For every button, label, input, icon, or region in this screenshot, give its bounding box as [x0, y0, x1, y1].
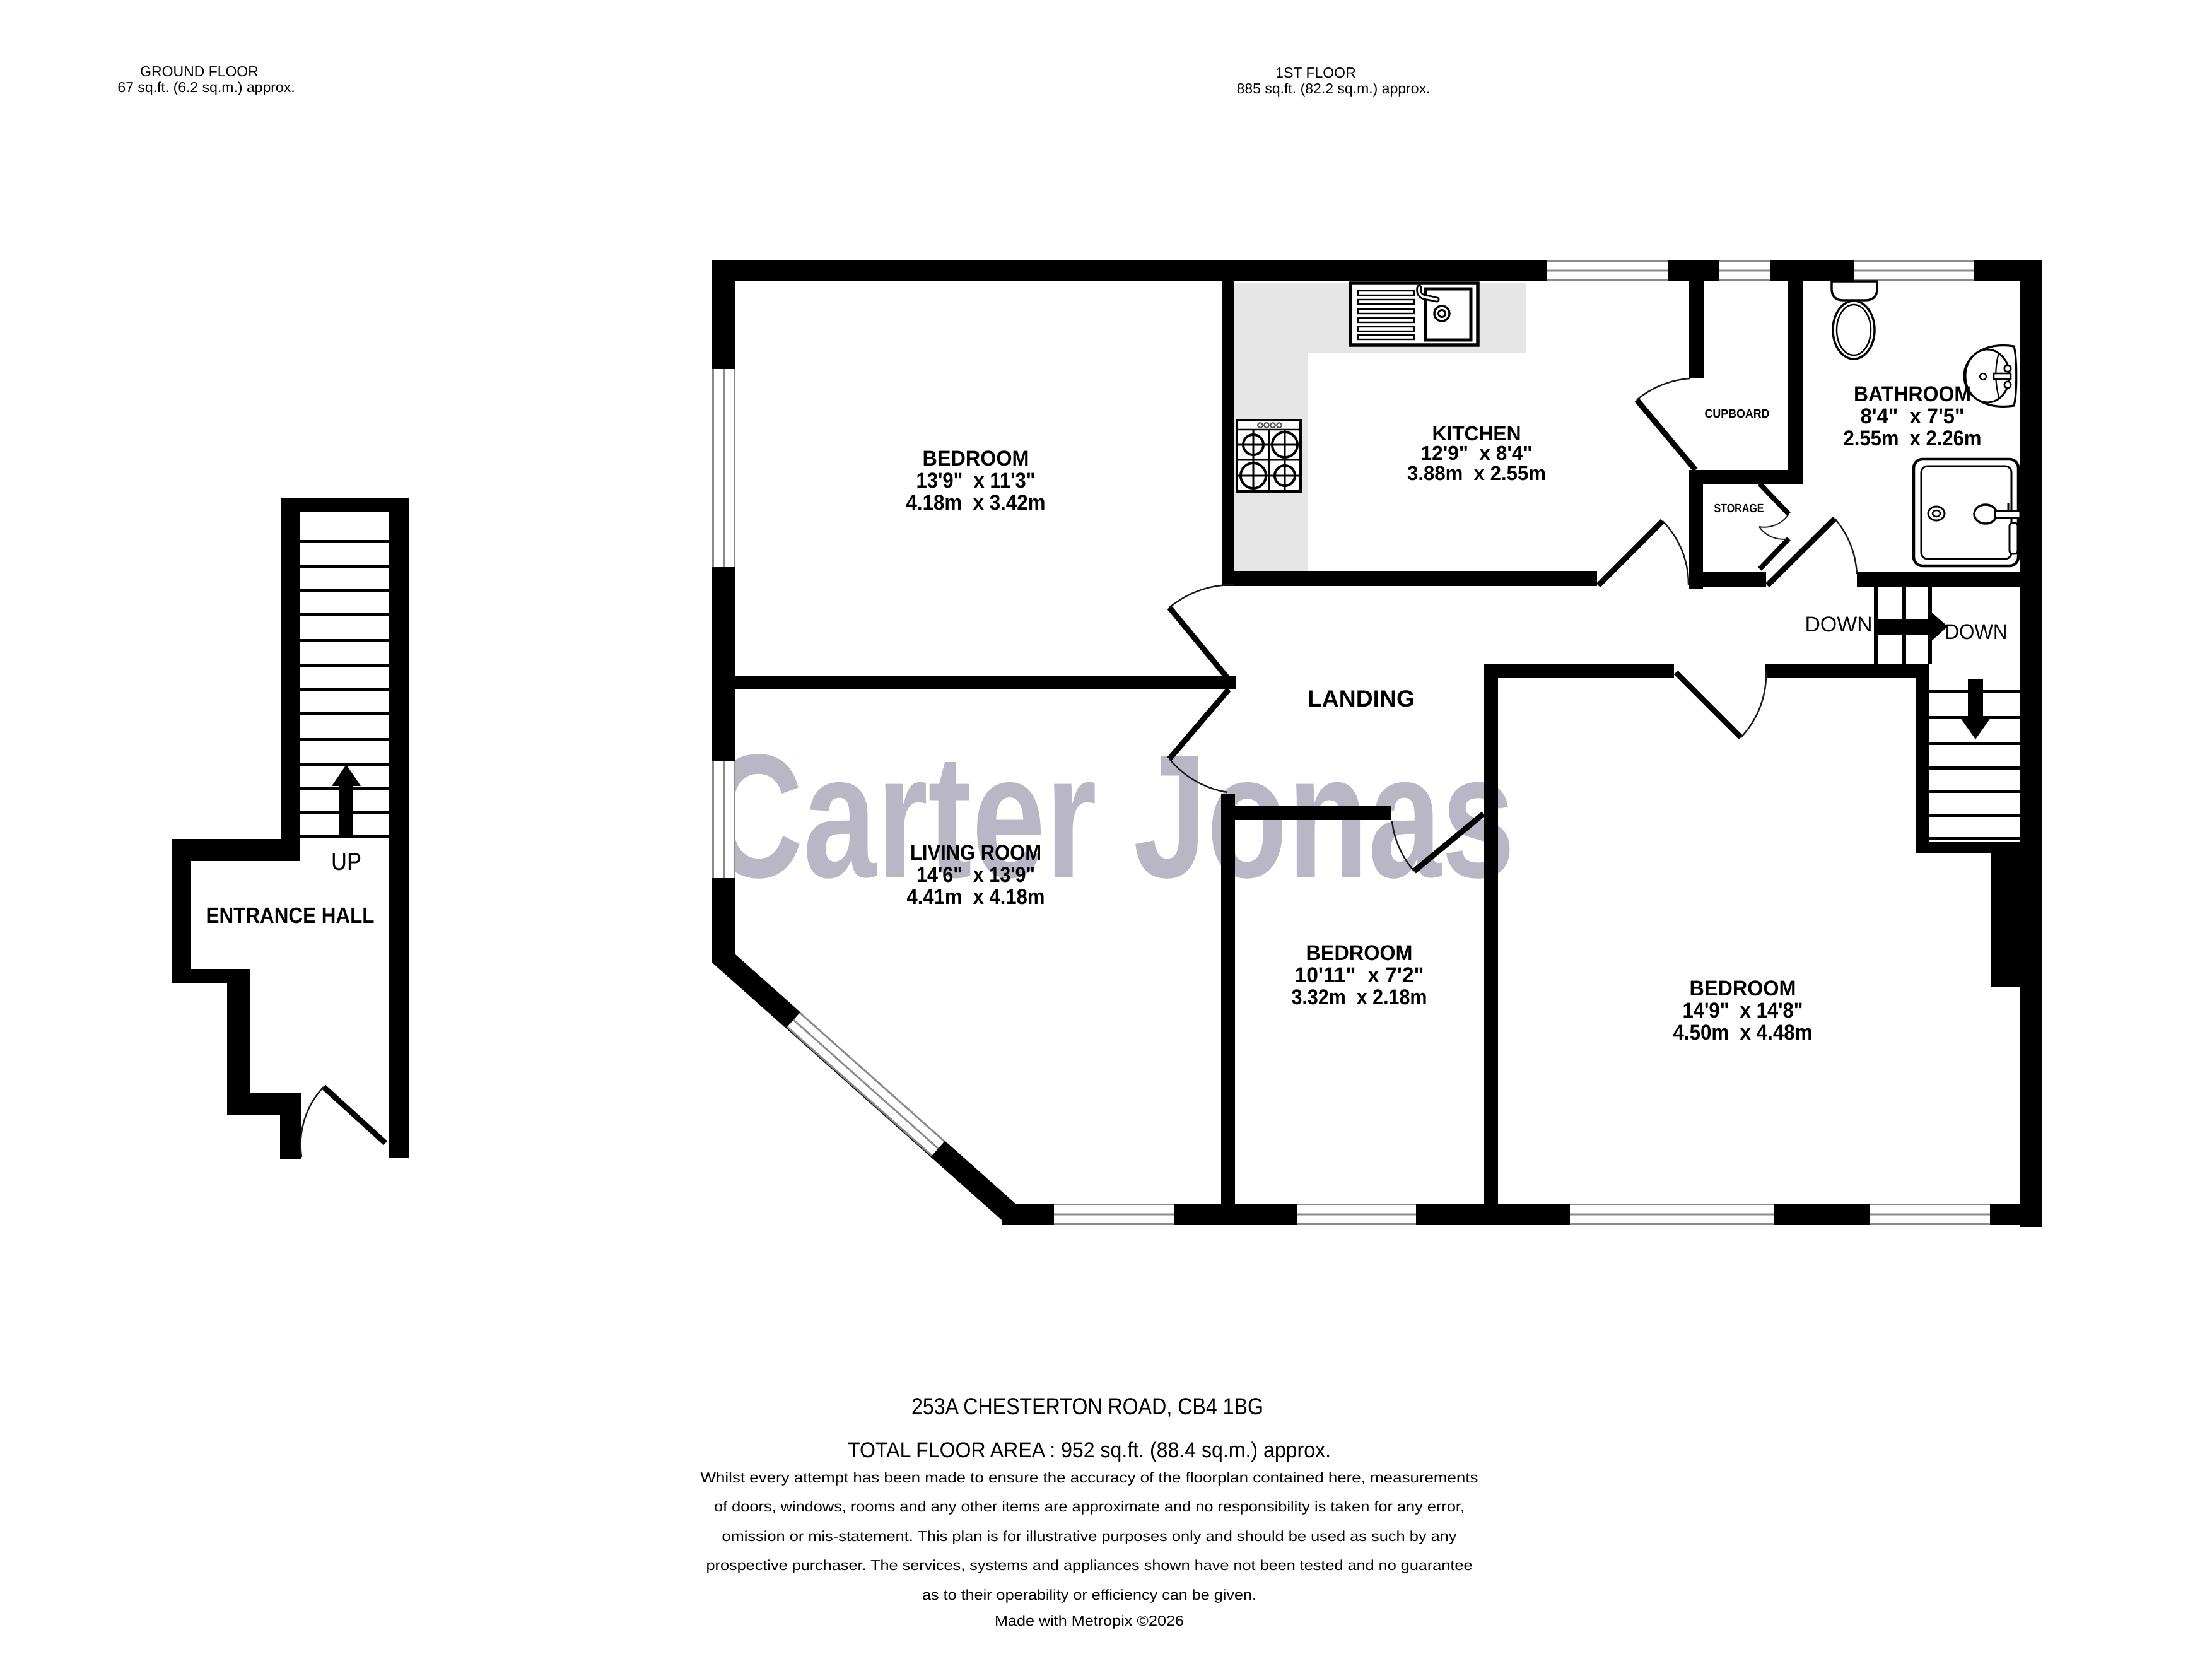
svg-text:BEDROOM: BEDROOM — [1306, 941, 1413, 965]
svg-text:Carter Jonas: Carter Jonas — [708, 718, 1515, 915]
svg-text:as to their operability or eff: as to their operability or efficiency ca… — [922, 1587, 1256, 1603]
svg-text:TOTAL FLOOR AREA : 952 sq.ft.: TOTAL FLOOR AREA : 952 sq.ft. (88.4 sq.m… — [848, 1438, 1331, 1462]
svg-text:Made with Metropix ©2026: Made with Metropix ©2026 — [995, 1612, 1184, 1629]
svg-text:4.18m x 3.42m: 4.18m x 3.42m — [906, 491, 1046, 515]
svg-text:2.55m x 2.26m: 2.55m x 2.26m — [1844, 426, 1982, 450]
svg-text:10'11" x 7'2": 10'11" x 7'2" — [1295, 963, 1424, 987]
svg-text:3.32m x 2.18m: 3.32m x 2.18m — [1292, 985, 1427, 1009]
svg-text:14'6" x 13'9": 14'6" x 13'9" — [916, 863, 1035, 887]
svg-text:of doors, windows, rooms and a: of doors, windows, rooms and any other i… — [714, 1498, 1465, 1515]
svg-text:LANDING: LANDING — [1308, 686, 1415, 712]
svg-text:4.50m x 4.48m: 4.50m x 4.48m — [1673, 1021, 1813, 1045]
svg-text:67 sq.ft. (6.2 sq.m.) approx.: 67 sq.ft. (6.2 sq.m.) approx. — [117, 79, 295, 95]
svg-text:STORAGE: STORAGE — [1714, 502, 1764, 515]
svg-text:omission or mis-statement. Thi: omission or mis-statement. This plan is … — [722, 1528, 1458, 1544]
svg-text:12'9" x 8'4": 12'9" x 8'4" — [1421, 442, 1533, 464]
svg-text:UP: UP — [331, 848, 361, 876]
svg-text:3.88m x 2.55m: 3.88m x 2.55m — [1407, 462, 1546, 484]
svg-text:253A CHESTERTON ROAD, CB4 1BG: 253A CHESTERTON ROAD, CB4 1BG — [911, 1393, 1263, 1419]
svg-text:4.41m x 4.18m: 4.41m x 4.18m — [907, 885, 1045, 909]
svg-text:prospective purchaser. The ser: prospective purchaser. The services, sys… — [706, 1557, 1473, 1573]
svg-text:885 sq.ft. (82.2 sq.m.) approx: 885 sq.ft. (82.2 sq.m.) approx. — [1237, 80, 1431, 97]
svg-text:ENTRANCE HALL: ENTRANCE HALL — [206, 903, 375, 928]
svg-text:8'4" x 7'5": 8'4" x 7'5" — [1861, 404, 1965, 428]
svg-text:1ST FLOOR: 1ST FLOOR — [1275, 64, 1355, 81]
svg-text:BATHROOM: BATHROOM — [1854, 382, 1971, 406]
svg-text:DOWN: DOWN — [1805, 613, 1873, 636]
svg-text:GROUND FLOOR: GROUND FLOOR — [140, 63, 259, 79]
svg-text:LIVING ROOM: LIVING ROOM — [910, 841, 1041, 865]
svg-text:BEDROOM: BEDROOM — [923, 447, 1029, 471]
svg-text:DOWN: DOWN — [1945, 620, 2008, 644]
svg-text:Whilst every attempt has been: Whilst every attempt has been made to en… — [701, 1469, 1478, 1486]
svg-text:13'9" x 11'3": 13'9" x 11'3" — [916, 469, 1036, 493]
svg-text:CUPBOARD: CUPBOARD — [1705, 408, 1770, 421]
svg-text:14'9" x 14'8": 14'9" x 14'8" — [1683, 999, 1803, 1023]
svg-text:BEDROOM: BEDROOM — [1690, 977, 1796, 1000]
